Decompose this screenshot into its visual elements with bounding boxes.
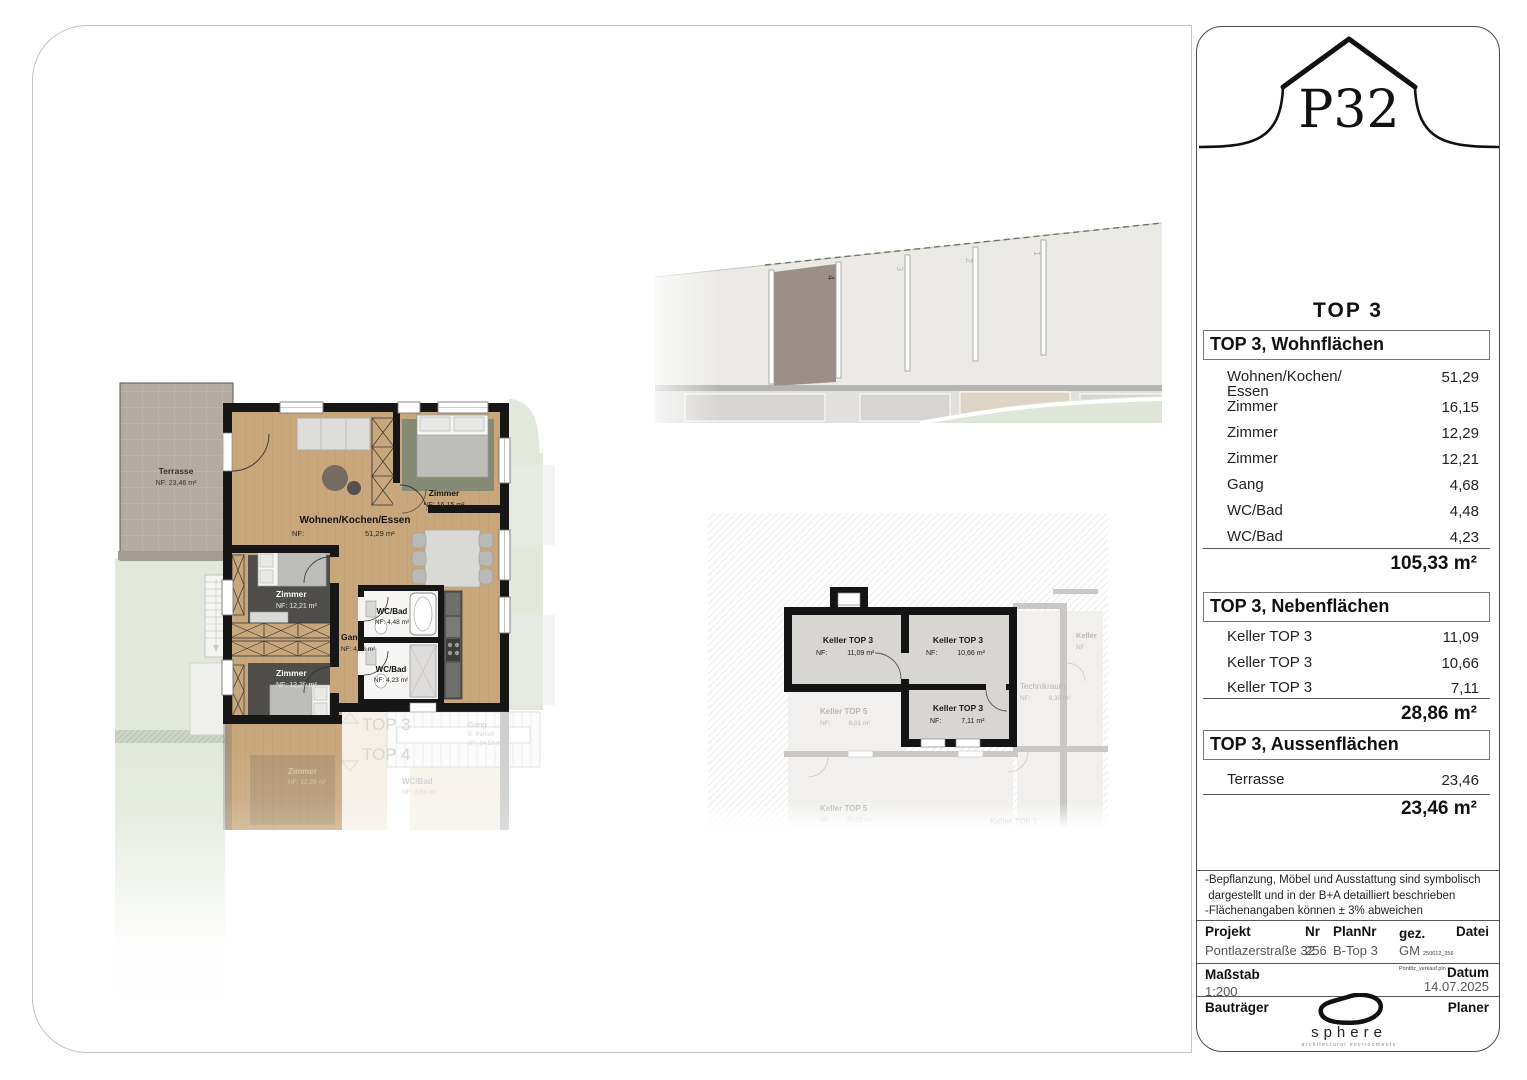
divider [1203,548,1490,549]
faded-keller-right-label: Keller [1076,631,1097,640]
faded-gang-label: Gang [468,720,486,729]
living-label: Wohnen/Kochen/Essen [300,515,411,526]
bedroom-3-label: Zimmer [276,668,307,678]
wohnflaechen-total: 105,33 m² [1390,553,1477,575]
parking-number-2: 2 [964,258,974,263]
keller-room1-nf: NF: [816,650,827,657]
planner-label: Planer [1448,1000,1489,1015]
terrasse: Terrasse NF: 23,46 m² [118,383,235,560]
desk [250,612,288,623]
faded-keller-top5-label: Keller TOP 5 [820,707,868,716]
parking-spot-4-highlight [774,264,836,386]
kitchen [444,591,462,699]
table-row: Keller TOP 3 10,66 [1227,655,1479,672]
sofa [297,418,370,450]
divider [1203,794,1490,795]
date-label: Datum [1447,965,1489,980]
wohnflaechen-header: TOP 3, Wohnflächen [1203,330,1490,360]
notes: -Bepflanzung, Möbel und Ausstattung sind… [1205,873,1491,920]
nebenflaechen-header: TOP 3, Nebenflächen [1203,592,1490,622]
datei-header: Datei [1456,924,1489,939]
bedroom-2-label: Zimmer [276,589,307,599]
project-value: Pontlazerstraße 32 [1205,943,1315,958]
bedroom-3-area: NF: 12,29 m² [276,682,318,689]
keller-room2-nf: NF: [926,650,937,657]
p32-logo-text: P32 [1298,80,1399,140]
living-nf-value: 51,29 m² [365,529,395,538]
faded-technikraum-label: Technikraum [1020,682,1066,691]
table-row: Gang 4,68 [1227,477,1479,494]
terrasse-area-label: NF: 23,46 m² [156,480,198,487]
sink [366,601,376,617]
parking-number-1: 1 [1032,251,1042,256]
aussenflaechen-header: TOP 3, Aussenflächen [1203,730,1490,760]
table-row: Zimmer 12,29 [1227,425,1479,442]
sphere-logo: sphere architectural environments [1289,993,1409,1051]
divider [1197,920,1499,921]
table-row: Zimmer 16,15 [1227,399,1479,416]
faded-technikraum-nf: NF: [1020,695,1031,702]
nebenflaechen-total: 28,86 m² [1401,703,1477,725]
site-plan: 4 3 2 1 [650,213,1175,428]
garden-right [509,397,555,710]
faded-keller-right-nf: NF [1076,644,1085,651]
main-floor-plan: Terrasse NF: 23,46 m² Zimmer NF: 16,15 m… [110,375,555,1015]
unit-title: TOP 3 [1197,299,1499,323]
parking-number-4: 4 [826,275,836,280]
table-row: Keller TOP 3 7,11 [1227,680,1479,697]
gez-header: gez. [1399,926,1425,941]
nr-value: 256 [1305,943,1327,958]
scale-label: Maßstab [1205,967,1260,982]
keller-room3-label: Keller TOP 3 [933,703,984,713]
nr-header: Nr [1305,924,1320,939]
sphere-logo-text: sphere [1311,1024,1387,1041]
p32-logo: P32 [1197,29,1501,169]
date-value: 14.07.2025 [1424,979,1489,994]
note-line: -Flächenangaben können ± 3% abweichen [1205,904,1491,920]
keller-room2-label: Keller TOP 3 [933,635,984,645]
aussenflaechen-total: 23,46 m² [1401,798,1477,820]
keller-plan: Keller TOP 5 NF:9,01 m² Technikraum NF:9… [708,513,1108,828]
note-line: -Bepflanzung, Möbel und Ausstattung sind… [1205,873,1491,889]
fade-overlay [110,745,555,1015]
dining-table [425,530,480,587]
wardrobe-column [372,418,394,505]
note-line: dargestellt und in der B+A detailliert b… [1205,889,1491,905]
keller-room3-nf: NF: [930,718,941,725]
keller-window [838,593,860,605]
table-row: Terrasse 23,46 [1227,772,1479,789]
coffee-table [322,465,348,491]
bedroom-2-area: NF: 12,21 m² [276,603,318,610]
bath-1-area: NF: 4,48 m² [375,619,410,626]
divider [1203,698,1490,699]
table-row: WC/Bad 4,23 [1227,529,1479,546]
parking-number-3: 3 [895,266,905,271]
wardrobe [232,665,244,717]
developer-label: Bauträger [1205,1000,1269,1015]
table-row: WC/Bad 4,48 [1227,503,1479,520]
bedroom-1-label: Zimmer [429,488,460,498]
table-row: Keller TOP 3 11,09 [1227,629,1479,646]
terrasse-label: Terrasse [159,466,194,476]
living-nf-label: NF: [292,529,304,538]
table-row: Wohnen/Kochen/ Essen 51,29 [1227,369,1479,399]
divider [1197,963,1499,964]
table-row: Zimmer 12,21 [1227,451,1479,468]
keller-room1-label: Keller TOP 3 [823,635,874,645]
faded-top3-label: TOP 3 [362,715,411,734]
bath-1-label: WC/Bad [377,607,408,616]
wardrobe [232,555,244,615]
title-block-sidebar: P32 TOP 3 TOP 3, Wohnflächen Wohnen/Koch… [1196,26,1500,1052]
bath-2-label: WC/Bad [376,665,407,674]
plannr-value: B-Top 3 [1333,943,1378,958]
divider [1197,870,1499,871]
plannr-header: PlanNr [1333,924,1377,939]
faded-gang-sub: B: Parkett [468,732,495,738]
faded-keller-top5-nf: NF: [820,720,831,727]
bathrooms: WC/Bad NF: 4,48 m² WC/Bad NF: 4,23 m² [364,591,438,699]
project-header: Projekt [1205,924,1251,939]
sphere-logo-tagline: architectural environments [1301,1042,1396,1048]
bath-2-area: NF: 4,23 m² [374,677,409,684]
